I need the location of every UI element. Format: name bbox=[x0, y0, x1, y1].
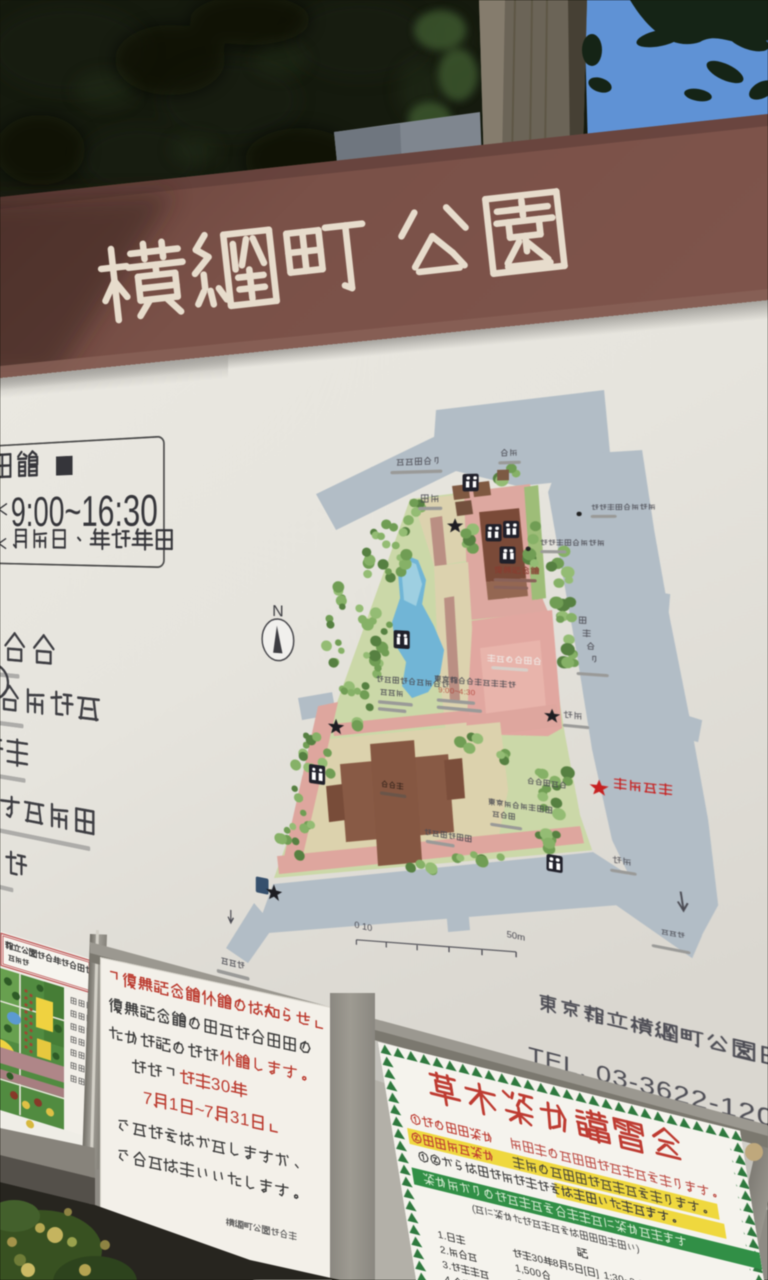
svg-text:0: 0 bbox=[445, 687, 449, 696]
svg-text:3: 3 bbox=[211, 1074, 220, 1095]
svg-text:9:00~16:30: 9:00~16:30 bbox=[11, 487, 158, 536]
svg-text:N: N bbox=[272, 601, 283, 620]
svg-text:0: 0 bbox=[221, 1076, 230, 1097]
svg-text:0: 0 bbox=[471, 689, 476, 698]
